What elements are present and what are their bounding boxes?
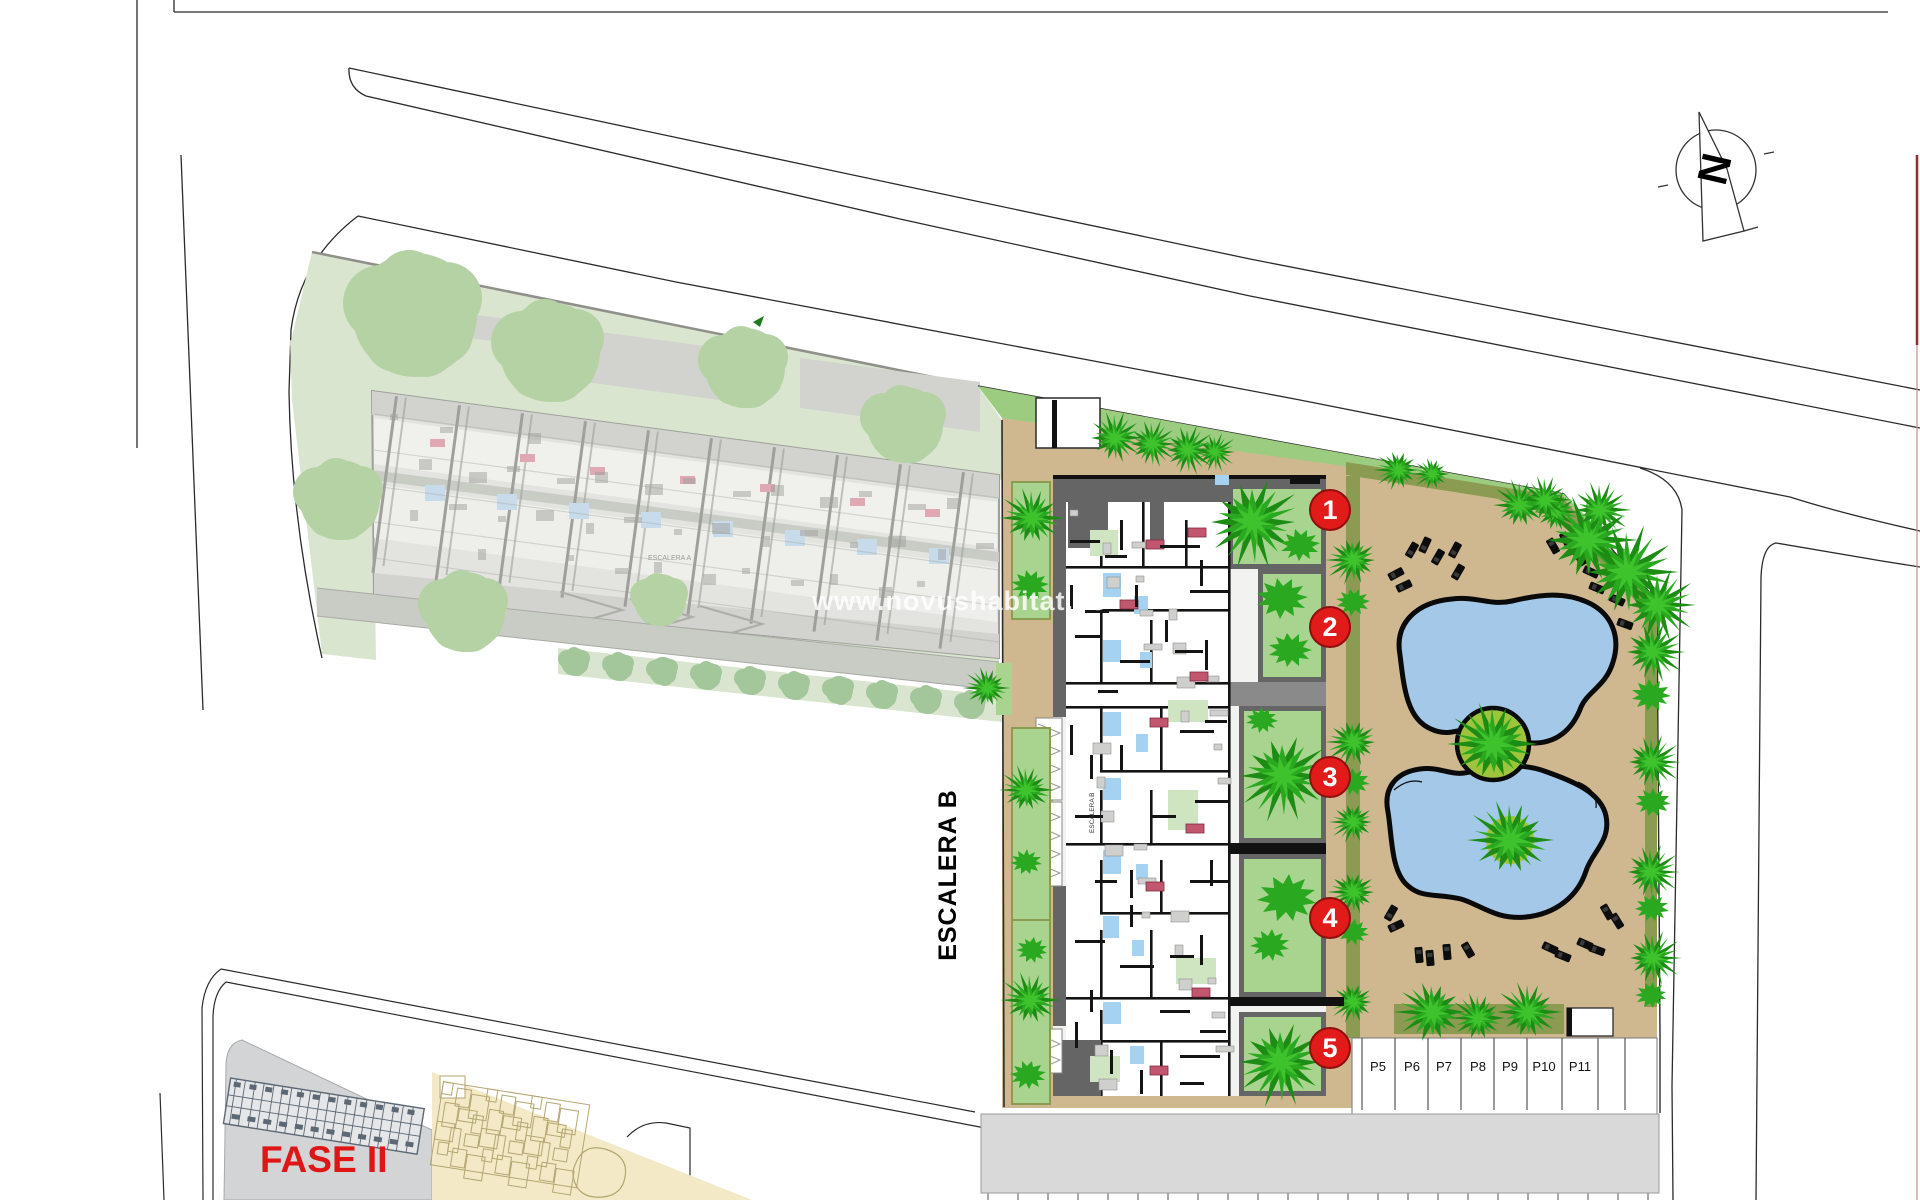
svg-text:P10: P10: [1532, 1059, 1555, 1074]
svg-text:P6: P6: [1404, 1059, 1420, 1074]
svg-text:P8: P8: [1470, 1059, 1486, 1074]
svg-text:P11: P11: [1569, 1059, 1591, 1074]
svg-text:ESCALERA B: ESCALERA B: [934, 789, 962, 961]
svg-text:ESCALERA A: ESCALERA A: [648, 555, 692, 562]
svg-text:www.novushabitat.co: www.novushabitat.co: [811, 586, 1108, 616]
svg-text:1: 1: [1322, 495, 1337, 525]
svg-text:P7: P7: [1436, 1059, 1452, 1074]
svg-text:P5: P5: [1370, 1059, 1386, 1074]
svg-text:3: 3: [1322, 762, 1337, 792]
svg-text:ESCALERA B: ESCALERA B: [1089, 793, 1096, 833]
svg-text:2: 2: [1322, 612, 1337, 642]
svg-text:4: 4: [1322, 903, 1337, 933]
svg-text:P9: P9: [1502, 1059, 1518, 1074]
svg-text:FASE II: FASE II: [260, 1139, 387, 1180]
svg-text:5: 5: [1322, 1033, 1337, 1063]
